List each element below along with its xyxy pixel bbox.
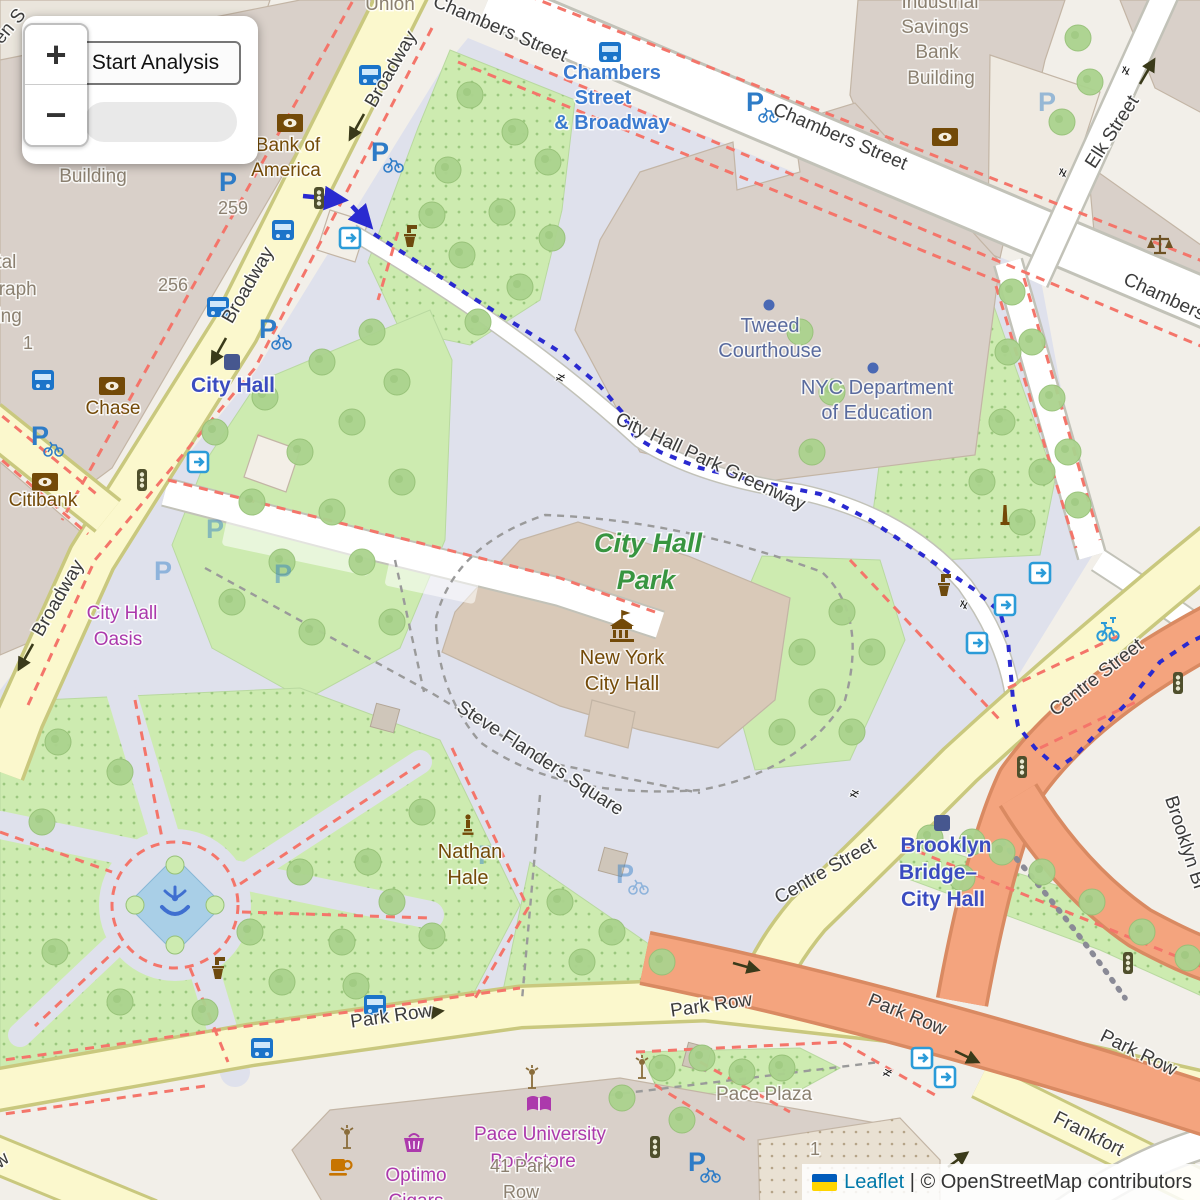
map-label: 1 [810, 1139, 820, 1159]
map-label: New York [580, 647, 665, 669]
tree-core [293, 445, 301, 453]
map-label: Pace University [474, 1124, 606, 1145]
tree-core [208, 425, 216, 433]
bank-icon [99, 377, 125, 395]
tree [502, 119, 528, 145]
tree [829, 599, 855, 625]
tree [1065, 25, 1091, 51]
map-label: Industrial [901, 0, 978, 13]
bus-icon [251, 1038, 273, 1058]
signal-icon [314, 187, 324, 209]
map-label: Savings [901, 17, 969, 38]
map-label: Building [0, 306, 22, 327]
tree-core [575, 955, 583, 963]
tree [995, 339, 1021, 365]
svg-text:P: P [688, 1147, 706, 1177]
tree [192, 999, 218, 1025]
map-label: Courthouse [718, 340, 821, 362]
tree-core [1061, 445, 1069, 453]
tree [507, 274, 533, 300]
tree [419, 202, 445, 228]
map-label: City Hall [901, 888, 985, 911]
map-label: Chase [86, 398, 141, 419]
museum-icon [932, 128, 958, 146]
map-label: Cigars [389, 1191, 444, 1200]
svg-text:P: P [371, 137, 389, 167]
tree-core [805, 445, 813, 453]
entrance-icon [967, 633, 987, 653]
map-label: Building [59, 166, 127, 187]
tree-core [48, 945, 56, 953]
tree [1029, 459, 1055, 485]
tree-core [441, 163, 449, 171]
tree [329, 929, 355, 955]
tree [969, 469, 995, 495]
tree [435, 157, 461, 183]
entrance-icon [1030, 563, 1050, 583]
tree-core [1181, 951, 1189, 959]
leaflet-link[interactable]: Leaflet [844, 1171, 904, 1194]
tree-core [553, 895, 561, 903]
tree-core [425, 208, 433, 216]
tree-core [865, 645, 873, 653]
tree-core [345, 415, 353, 423]
map-label: City Hall [585, 673, 659, 695]
tree [789, 639, 815, 665]
tree [409, 799, 435, 825]
map-label: of Education [821, 402, 932, 424]
tree-core [695, 1051, 703, 1059]
map-label: Row [503, 1182, 540, 1200]
map-label: Bank of [256, 135, 321, 156]
parking-icon: P [274, 559, 292, 589]
map-label: Oasis [94, 629, 143, 650]
tree [237, 919, 263, 945]
book-icon [527, 1096, 551, 1111]
tree-core [335, 935, 343, 943]
map-label: Postal [0, 252, 16, 273]
map-label: Street [575, 87, 632, 109]
tree-core [315, 355, 323, 363]
tree [219, 589, 245, 615]
svg-text:P: P [1038, 87, 1056, 117]
tree [449, 242, 475, 268]
tree [599, 919, 625, 945]
svg-text:P: P [219, 167, 237, 197]
tree [489, 199, 515, 225]
tree [1079, 889, 1105, 915]
tree [799, 439, 825, 465]
tree-core [835, 605, 843, 613]
tree-core [775, 725, 783, 733]
map-label: 41 Park [490, 1156, 553, 1176]
tree-core [605, 925, 613, 933]
map-label: 256 [158, 275, 188, 295]
station-icon [934, 815, 950, 831]
zoom-in-button[interactable]: + [25, 25, 87, 85]
map-label: 259 [218, 198, 248, 218]
tree [1019, 329, 1045, 355]
tree [45, 729, 71, 755]
signal-icon [1017, 756, 1027, 778]
tree-core [1035, 465, 1043, 473]
tree [569, 949, 595, 975]
entrance-icon [912, 1048, 932, 1068]
entrance-icon [995, 595, 1015, 615]
tree-core [385, 895, 393, 903]
tree-core [1001, 345, 1009, 353]
tree [769, 1055, 795, 1081]
entrance-icon [935, 1067, 955, 1087]
tree-core [495, 205, 503, 213]
tree [689, 1045, 715, 1071]
tree [343, 973, 369, 999]
tree-core [615, 1091, 623, 1099]
svg-text:P: P [274, 559, 292, 589]
tree [419, 923, 445, 949]
tree-core [675, 1113, 683, 1121]
tree [769, 719, 795, 745]
tree-core [355, 555, 363, 563]
tree-core [395, 475, 403, 483]
map-label: Building [907, 68, 975, 89]
tree [1029, 859, 1055, 885]
tree-core [1071, 31, 1079, 39]
tree [287, 439, 313, 465]
map-label: America [251, 160, 321, 181]
tree-core [51, 735, 59, 743]
bank-icon [277, 114, 303, 132]
tree [379, 609, 405, 635]
tree-core [113, 765, 121, 773]
svg-text:P: P [31, 421, 49, 451]
tree [202, 419, 228, 445]
tree [287, 859, 313, 885]
tree-core [349, 979, 357, 987]
osm-copyright: © OpenStreetMap contributors [920, 1171, 1192, 1194]
tree-core [1055, 115, 1063, 123]
map-label: Union [365, 0, 415, 15]
tree-core [385, 615, 393, 623]
tree [539, 225, 565, 251]
map-label: Pace Plaza [716, 1084, 813, 1105]
tree [809, 689, 835, 715]
tree [989, 409, 1015, 435]
map-label: Nathan [438, 841, 503, 863]
tree-core [655, 955, 663, 963]
tree [1077, 69, 1103, 95]
tree [309, 349, 335, 375]
poidot-icon [764, 300, 775, 311]
tree-core [1045, 391, 1053, 399]
svg-text:P: P [616, 859, 634, 889]
tree-core [845, 725, 853, 733]
bank-icon [32, 473, 58, 491]
tree [239, 489, 265, 515]
tree [107, 759, 133, 785]
tree-core [198, 1005, 206, 1013]
tree-core [325, 505, 333, 513]
tree-core [361, 855, 369, 863]
tree [457, 82, 483, 108]
tree-core [415, 805, 423, 813]
map-label: Bridge– [899, 861, 978, 884]
map-label: City Hall [594, 528, 703, 558]
bus-icon [599, 42, 621, 62]
tree-core [1071, 498, 1079, 506]
tree [999, 279, 1025, 305]
tree-core [995, 415, 1003, 423]
ukraine-flag-icon [812, 1174, 837, 1191]
signal-icon [137, 469, 147, 491]
bus-icon [32, 370, 54, 390]
entrance-icon [188, 452, 208, 472]
tree [1129, 919, 1155, 945]
signal-icon [1123, 952, 1133, 974]
tree [547, 889, 573, 915]
map-label: City Hall [191, 374, 275, 397]
map-label: Park [617, 565, 678, 595]
tree-core [425, 929, 433, 937]
attribution-separator: | [904, 1171, 920, 1194]
map-label: Citibank [9, 490, 78, 511]
tree-core [513, 280, 521, 288]
tree [355, 849, 381, 875]
zoom-control: + − [23, 23, 89, 147]
start-analysis-button[interactable]: Start Analysis [70, 41, 241, 85]
map-label: Telegraph [0, 279, 37, 300]
tree-core [1025, 335, 1033, 343]
svg-text:P: P [206, 514, 224, 544]
tree [359, 319, 385, 345]
map-label: & Broadway [554, 112, 670, 134]
tree-core [463, 88, 471, 96]
bus-icon [272, 220, 294, 240]
tree-core [655, 1061, 663, 1069]
tree-core [245, 495, 253, 503]
tree [349, 549, 375, 575]
tree-core [815, 695, 823, 703]
tree-core [1085, 895, 1093, 903]
tree-core [455, 248, 463, 256]
parking-icon: P [154, 556, 172, 586]
tree-core [545, 231, 553, 239]
entrance-icon [340, 228, 360, 248]
map-label: City Hall [87, 603, 158, 624]
tree [107, 989, 133, 1015]
svg-text:P: P [259, 314, 277, 344]
tree [319, 499, 345, 525]
tree-core [113, 995, 121, 1003]
tree [1009, 509, 1035, 535]
tree-core [541, 155, 549, 163]
svg-text:P: P [746, 87, 764, 117]
map-label: Optimo [385, 1165, 446, 1186]
tree-core [508, 125, 516, 133]
map-label: Brooklyn [900, 834, 991, 857]
tree [269, 969, 295, 995]
analysis-progress-bar [84, 102, 237, 142]
map-app: ≠≠≠≠≠≠PPPPPPPPPPPPChambers StreetChamber… [0, 0, 1200, 1200]
tree-core [35, 815, 43, 823]
map-canvas[interactable]: ≠≠≠≠≠≠PPPPPPPPPPPPChambers StreetChamber… [0, 0, 1200, 1200]
tree [1039, 385, 1065, 411]
tree [649, 1055, 675, 1081]
tree [649, 949, 675, 975]
map-label: NYC Department [801, 377, 954, 399]
tree [535, 149, 561, 175]
tree-core [775, 1061, 783, 1069]
tree [42, 939, 68, 965]
tree-core [735, 1065, 743, 1073]
tree-core [1005, 285, 1013, 293]
map-label: Hale [447, 867, 488, 889]
tree [609, 1085, 635, 1111]
map-label: 1 [23, 333, 33, 353]
tree [339, 409, 365, 435]
tree [729, 1059, 755, 1085]
tree-core [471, 315, 479, 323]
tree [29, 809, 55, 835]
tree-core [1035, 865, 1043, 873]
attribution-bar: Leaflet | © OpenStreetMap contributors [802, 1164, 1200, 1200]
tree-core [1083, 75, 1091, 83]
tree-core [275, 975, 283, 983]
tree [1065, 492, 1091, 518]
station-icon [224, 354, 240, 370]
tree [465, 309, 491, 335]
map-label: Bank [915, 42, 959, 63]
tree [384, 369, 410, 395]
tree-core [1135, 925, 1143, 933]
tree [669, 1107, 695, 1133]
tree-core [975, 475, 983, 483]
tree-core [243, 925, 251, 933]
parking-icon: P [1038, 87, 1056, 117]
tree-core [225, 595, 233, 603]
zoom-out-button[interactable]: − [25, 85, 87, 145]
tree [989, 839, 1015, 865]
tree-core [995, 845, 1003, 853]
signal-icon [1173, 672, 1183, 694]
parking-icon: P [219, 167, 237, 197]
map-label: Chambers [563, 62, 661, 84]
signal-icon [650, 1136, 660, 1158]
tree [299, 619, 325, 645]
tree-core [1015, 515, 1023, 523]
tree [839, 719, 865, 745]
tree [379, 889, 405, 915]
map-label: Tweed [741, 315, 800, 337]
tree-core [390, 375, 398, 383]
tree-core [365, 325, 373, 333]
tree [859, 639, 885, 665]
tree-core [293, 865, 301, 873]
tree [389, 469, 415, 495]
tree [1055, 439, 1081, 465]
poidot-icon [868, 363, 879, 374]
tree-core [795, 645, 803, 653]
tree-core [305, 625, 313, 633]
parking-icon: P [206, 514, 224, 544]
svg-text:P: P [154, 556, 172, 586]
